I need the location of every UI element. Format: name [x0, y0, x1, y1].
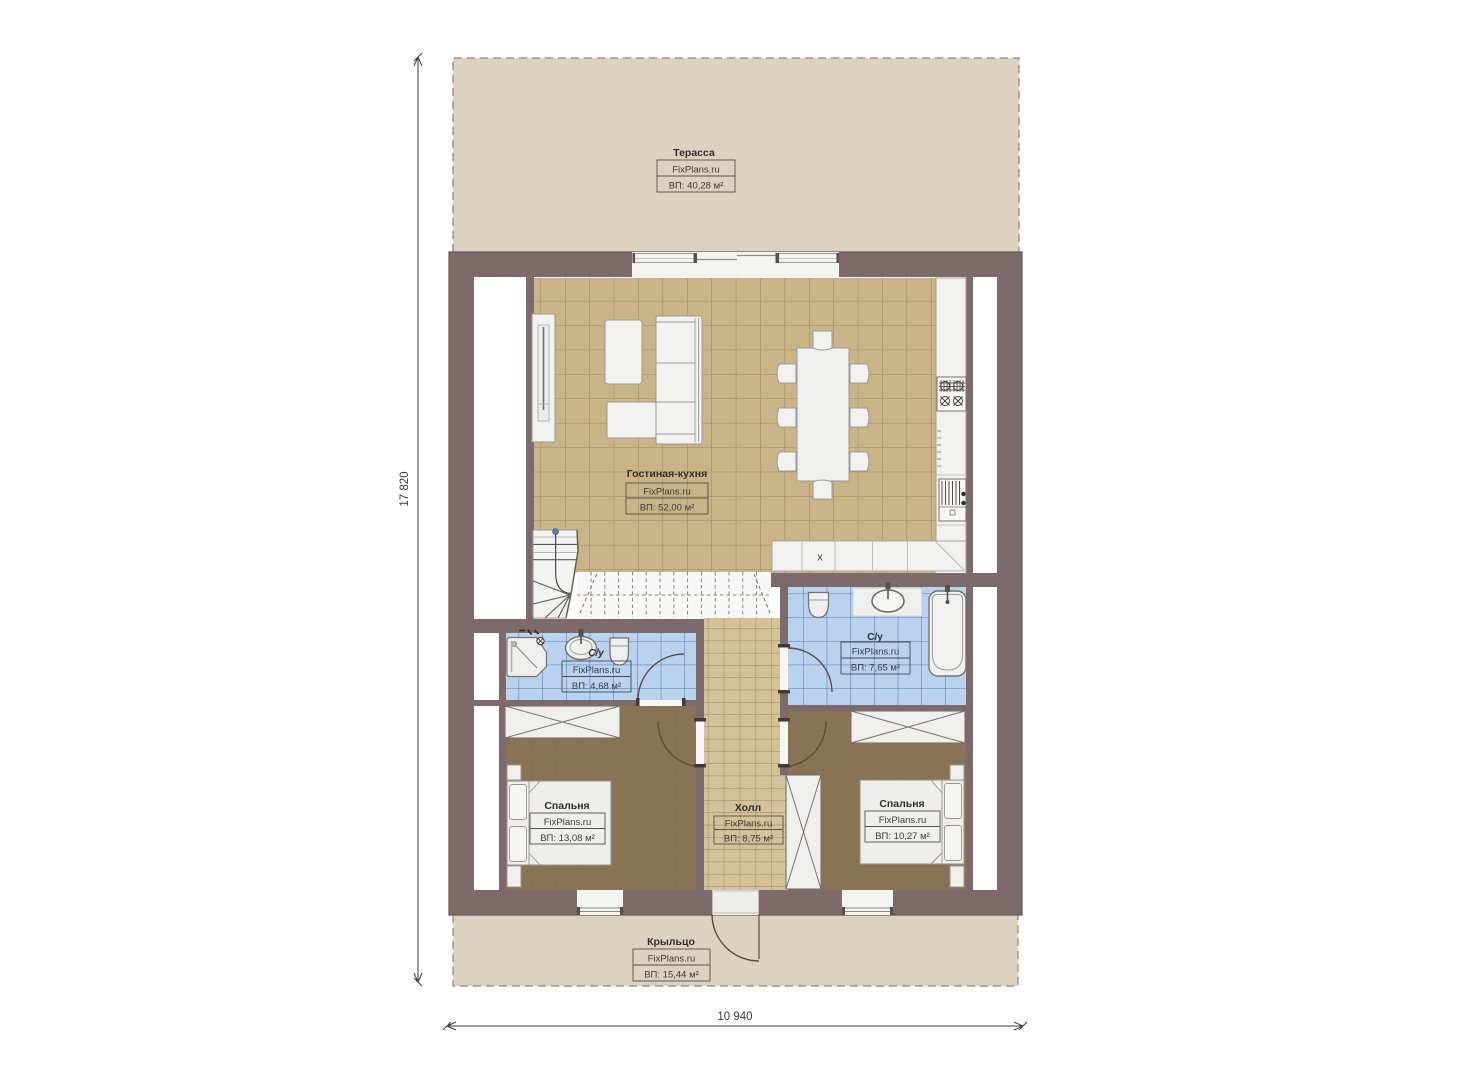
svg-text:FixPlans.ru: FixPlans.ru	[544, 817, 592, 828]
svg-text:С/у: С/у	[867, 632, 883, 643]
svg-text:ВП: 10,27 м²: ВП: 10,27 м²	[875, 831, 930, 842]
svg-text:FixPlans.ru: FixPlans.ru	[573, 665, 621, 676]
svg-text:ВП: 15,44 м²: ВП: 15,44 м²	[644, 970, 699, 981]
svg-text:FixPlans.ru: FixPlans.ru	[672, 165, 720, 176]
svg-text:ВП: 40,28 м²: ВП: 40,28 м²	[669, 181, 724, 192]
svg-text:Гостиная-кухня: Гостиная-кухня	[627, 468, 707, 480]
svg-text:С/у: С/у	[588, 648, 604, 659]
svg-text:ВП: 7,65 м²: ВП: 7,65 м²	[851, 663, 900, 674]
svg-text:ВП: 8,75 м²: ВП: 8,75 м²	[724, 834, 773, 845]
svg-text:10 940: 10 940	[717, 1011, 752, 1023]
svg-text:FixPlans.ru: FixPlans.ru	[643, 487, 691, 498]
svg-text:17 820: 17 820	[399, 471, 411, 506]
svg-text:Спальня: Спальня	[544, 800, 589, 812]
svg-text:ВП: 4,68 м²: ВП: 4,68 м²	[572, 681, 621, 692]
svg-text:Холл: Холл	[735, 802, 761, 814]
svg-text:ВП: 13,08 м²: ВП: 13,08 м²	[540, 833, 595, 844]
svg-text:FixPlans.ru: FixPlans.ru	[879, 815, 927, 826]
svg-text:x: x	[817, 552, 823, 564]
svg-text:Терасса: Терасса	[673, 147, 715, 159]
svg-text:Крыльцо: Крыльцо	[647, 936, 695, 948]
svg-text:FixPlans.ru: FixPlans.ru	[725, 819, 773, 830]
svg-text:Спальня: Спальня	[879, 798, 924, 810]
svg-text:ВП: 52,00 м²: ВП: 52,00 м²	[640, 503, 695, 514]
svg-text:FixPlans.ru: FixPlans.ru	[648, 954, 696, 965]
svg-text:FixPlans.ru: FixPlans.ru	[852, 647, 900, 658]
